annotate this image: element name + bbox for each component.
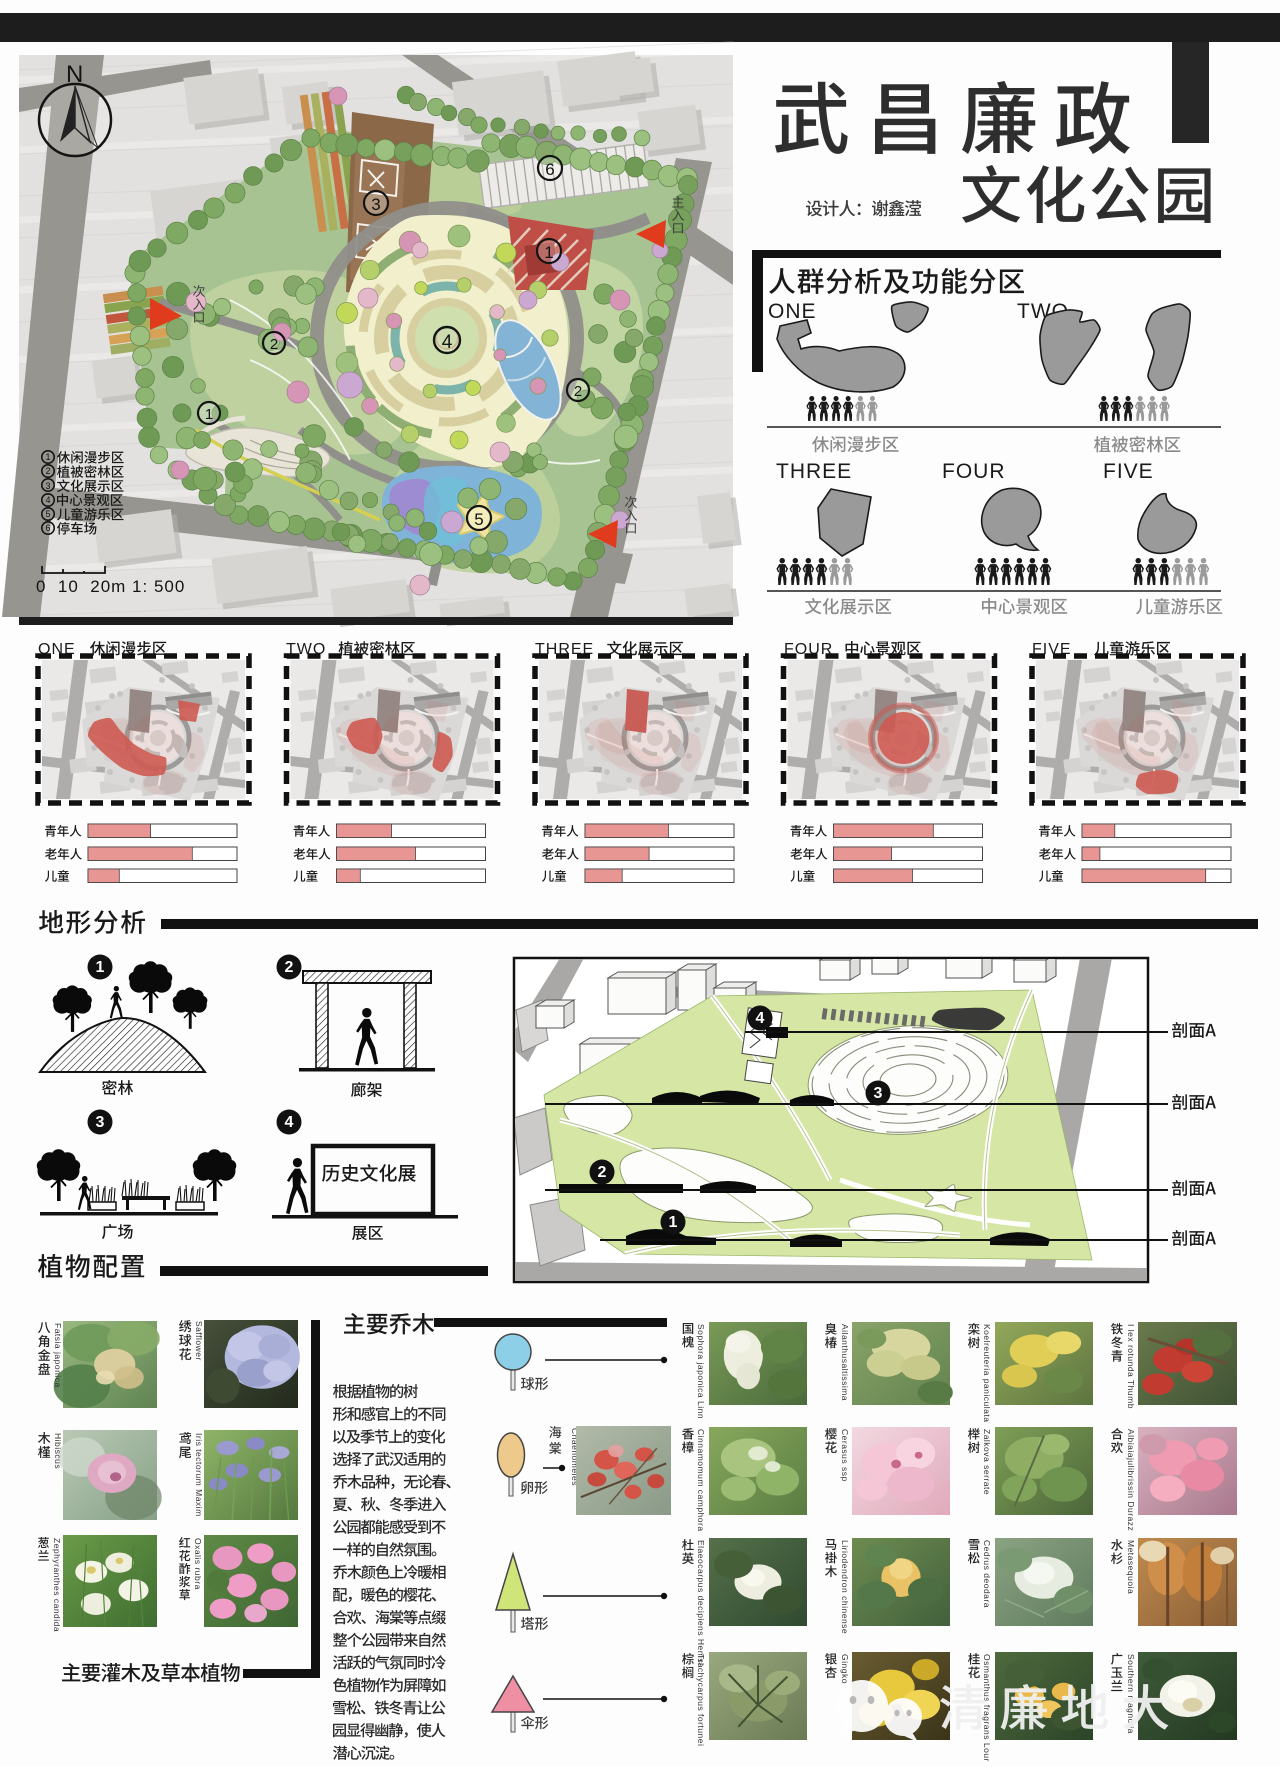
svg-text:Trachycarpus fortunei: Trachycarpus fortunei — [696, 1654, 706, 1746]
svg-text:FOUR: FOUR — [942, 460, 1006, 483]
svg-text:3: 3 — [371, 195, 380, 214]
svg-text:1: 1 — [544, 243, 553, 262]
svg-text:Sophora japonica Linn: Sophora japonica Linn — [696, 1324, 706, 1419]
svg-text:Iris tectorum Maxim: Iris tectorum Maxim — [194, 1433, 204, 1517]
svg-text:2: 2 — [598, 1164, 607, 1181]
svg-text:4: 4 — [285, 1114, 294, 1131]
svg-text:1: 1 — [205, 406, 213, 423]
svg-text:2: 2 — [574, 383, 582, 400]
svg-text:Oxalis rubra: Oxalis rubra — [193, 1538, 203, 1590]
svg-text:4: 4 — [45, 495, 50, 505]
svg-text:Cinnamomum camphora: Cinnamomum camphora — [696, 1429, 706, 1532]
svg-text:Elaeocarpus decipiens Hemsl: Elaeocarpus decipiens Hemsl — [696, 1540, 706, 1665]
svg-text:1: 1 — [96, 959, 105, 976]
svg-text:5: 5 — [474, 510, 483, 529]
svg-text:0 10 20m 1: 500: 0 10 20m 1: 500 — [36, 577, 185, 596]
svg-text:Koelreuteria paniculata: Koelreuteria paniculata — [982, 1324, 992, 1422]
svg-text:Metasequoia: Metasequoia — [1126, 1540, 1136, 1594]
svg-text:FIVE: FIVE — [1103, 460, 1154, 483]
svg-text:1: 1 — [669, 1214, 678, 1231]
svg-text:Ailanthusaltissima: Ailanthusaltissima — [840, 1324, 850, 1401]
svg-text:2: 2 — [45, 466, 50, 476]
svg-text:Safflower: Safflower — [194, 1321, 204, 1361]
svg-text:6: 6 — [45, 523, 50, 533]
svg-text:Albiaiajulibrissin Durazz: Albiaiajulibrissin Durazz — [1126, 1429, 1136, 1531]
svg-text:6: 6 — [545, 160, 554, 179]
svg-text:3: 3 — [45, 481, 50, 491]
svg-text:3: 3 — [96, 1114, 105, 1131]
svg-text:N: N — [66, 61, 83, 88]
svg-text:I lex rotunda Thumb: I lex rotunda Thumb — [1126, 1324, 1136, 1409]
svg-text:Hibiscus: Hibiscus — [53, 1433, 63, 1469]
svg-text:Gingko: Gingko — [840, 1654, 850, 1684]
svg-text:Liriodendron chinense: Liriodendron chinense — [840, 1540, 850, 1634]
svg-text:ONE: ONE — [768, 300, 817, 323]
svg-text:4: 4 — [442, 332, 453, 353]
svg-text:THREE: THREE — [776, 460, 852, 483]
svg-text:Zalkova serrate: Zalkova serrate — [982, 1429, 992, 1495]
svg-text:4: 4 — [756, 1010, 765, 1027]
svg-text:5: 5 — [45, 509, 50, 519]
svg-text:Cerasus ssp: Cerasus ssp — [840, 1429, 850, 1482]
svg-text:2: 2 — [285, 959, 294, 976]
svg-text:Fatsia japonica: Fatsia japonica — [53, 1323, 63, 1388]
svg-text:3: 3 — [874, 1085, 883, 1102]
svg-text:Cedrus deodara: Cedrus deodara — [982, 1540, 992, 1608]
svg-text:1: 1 — [45, 452, 50, 462]
svg-text:2: 2 — [270, 336, 278, 353]
svg-text:Zephyranthes candida: Zephyranthes candida — [52, 1538, 62, 1632]
svg-text:Osmanthus fragrans Lour: Osmanthus fragrans Lour — [982, 1654, 992, 1762]
